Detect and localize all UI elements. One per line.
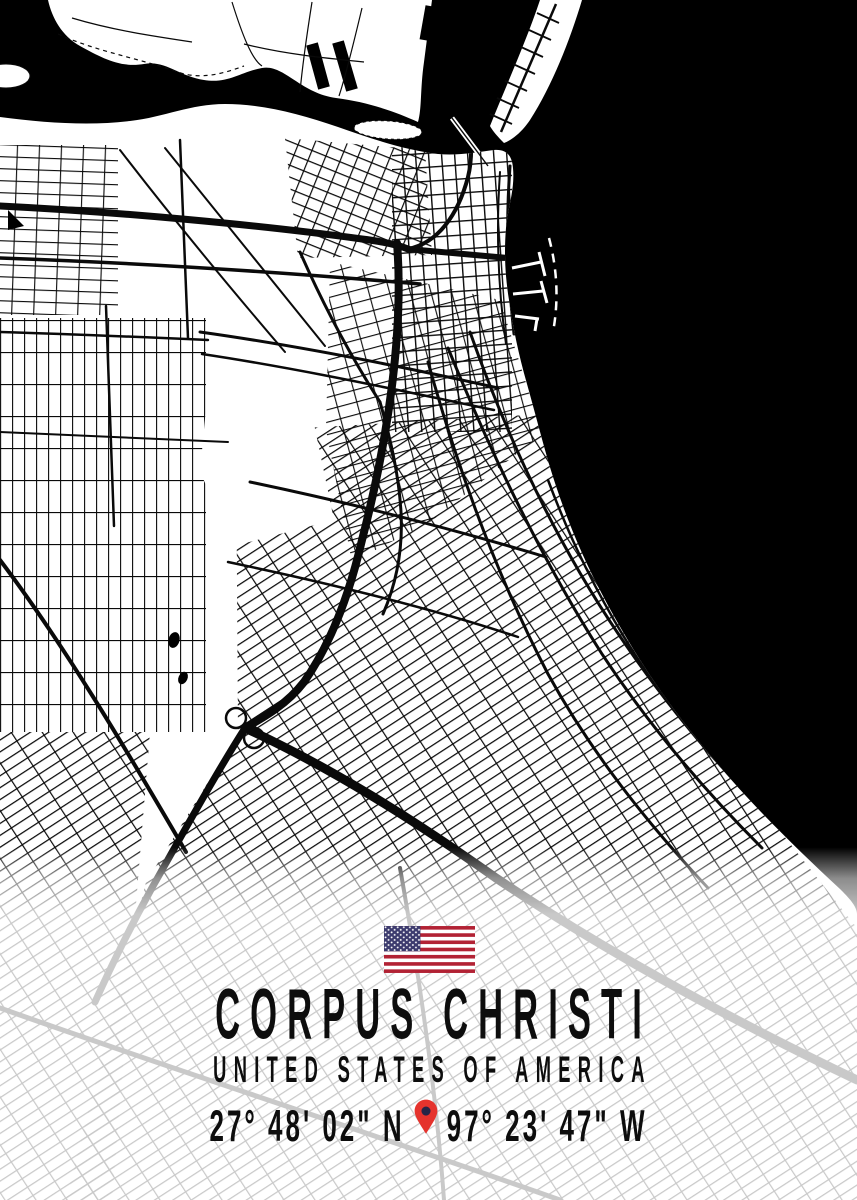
city-map	[0, 0, 857, 1200]
map-poster: CORPUS CHRISTI UNITED STATES OF AMERICA …	[0, 0, 857, 1200]
